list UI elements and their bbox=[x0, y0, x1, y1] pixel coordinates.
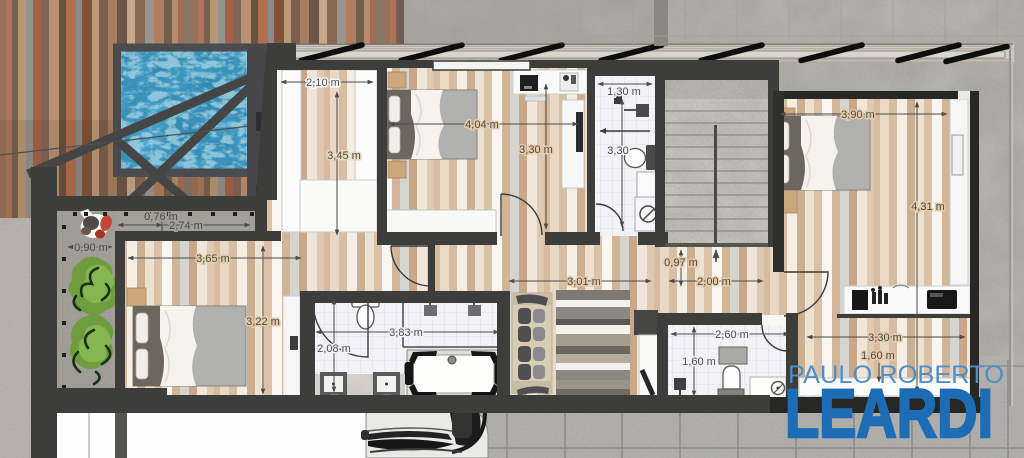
svg-text:3,30 m: 3,30 m bbox=[868, 332, 902, 344]
svg-text:3,01 m: 3,01 m bbox=[567, 276, 601, 288]
svg-text:2,60 m: 2,60 m bbox=[715, 329, 749, 341]
svg-text:3,22 m: 3,22 m bbox=[246, 316, 280, 328]
svg-text:2,08 m: 2,08 m bbox=[317, 343, 351, 355]
svg-text:LEARDI: LEARDI bbox=[785, 375, 993, 452]
svg-text:3,30: 3,30 bbox=[607, 145, 628, 157]
svg-text:4,31 m: 4,31 m bbox=[911, 201, 945, 213]
svg-text:3,65 m: 3,65 m bbox=[196, 253, 230, 265]
svg-text:1,30 m: 1,30 m bbox=[607, 86, 641, 98]
svg-text:4,04 m: 4,04 m bbox=[465, 119, 499, 131]
svg-text:2,00 m: 2,00 m bbox=[697, 276, 731, 288]
svg-text:3,83 m: 3,83 m bbox=[389, 327, 423, 339]
svg-text:3,90 m: 3,90 m bbox=[841, 109, 875, 121]
svg-text:2,10 m: 2,10 m bbox=[306, 77, 340, 89]
svg-text:0,90 m: 0,90 m bbox=[74, 242, 108, 254]
svg-text:1,60 m: 1,60 m bbox=[682, 356, 716, 368]
svg-text:3,30 m: 3,30 m bbox=[519, 144, 553, 156]
svg-text:0,97 m: 0,97 m bbox=[664, 257, 698, 269]
svg-text:3,45 m: 3,45 m bbox=[327, 150, 361, 162]
svg-text:2,74 m: 2,74 m bbox=[169, 220, 203, 232]
